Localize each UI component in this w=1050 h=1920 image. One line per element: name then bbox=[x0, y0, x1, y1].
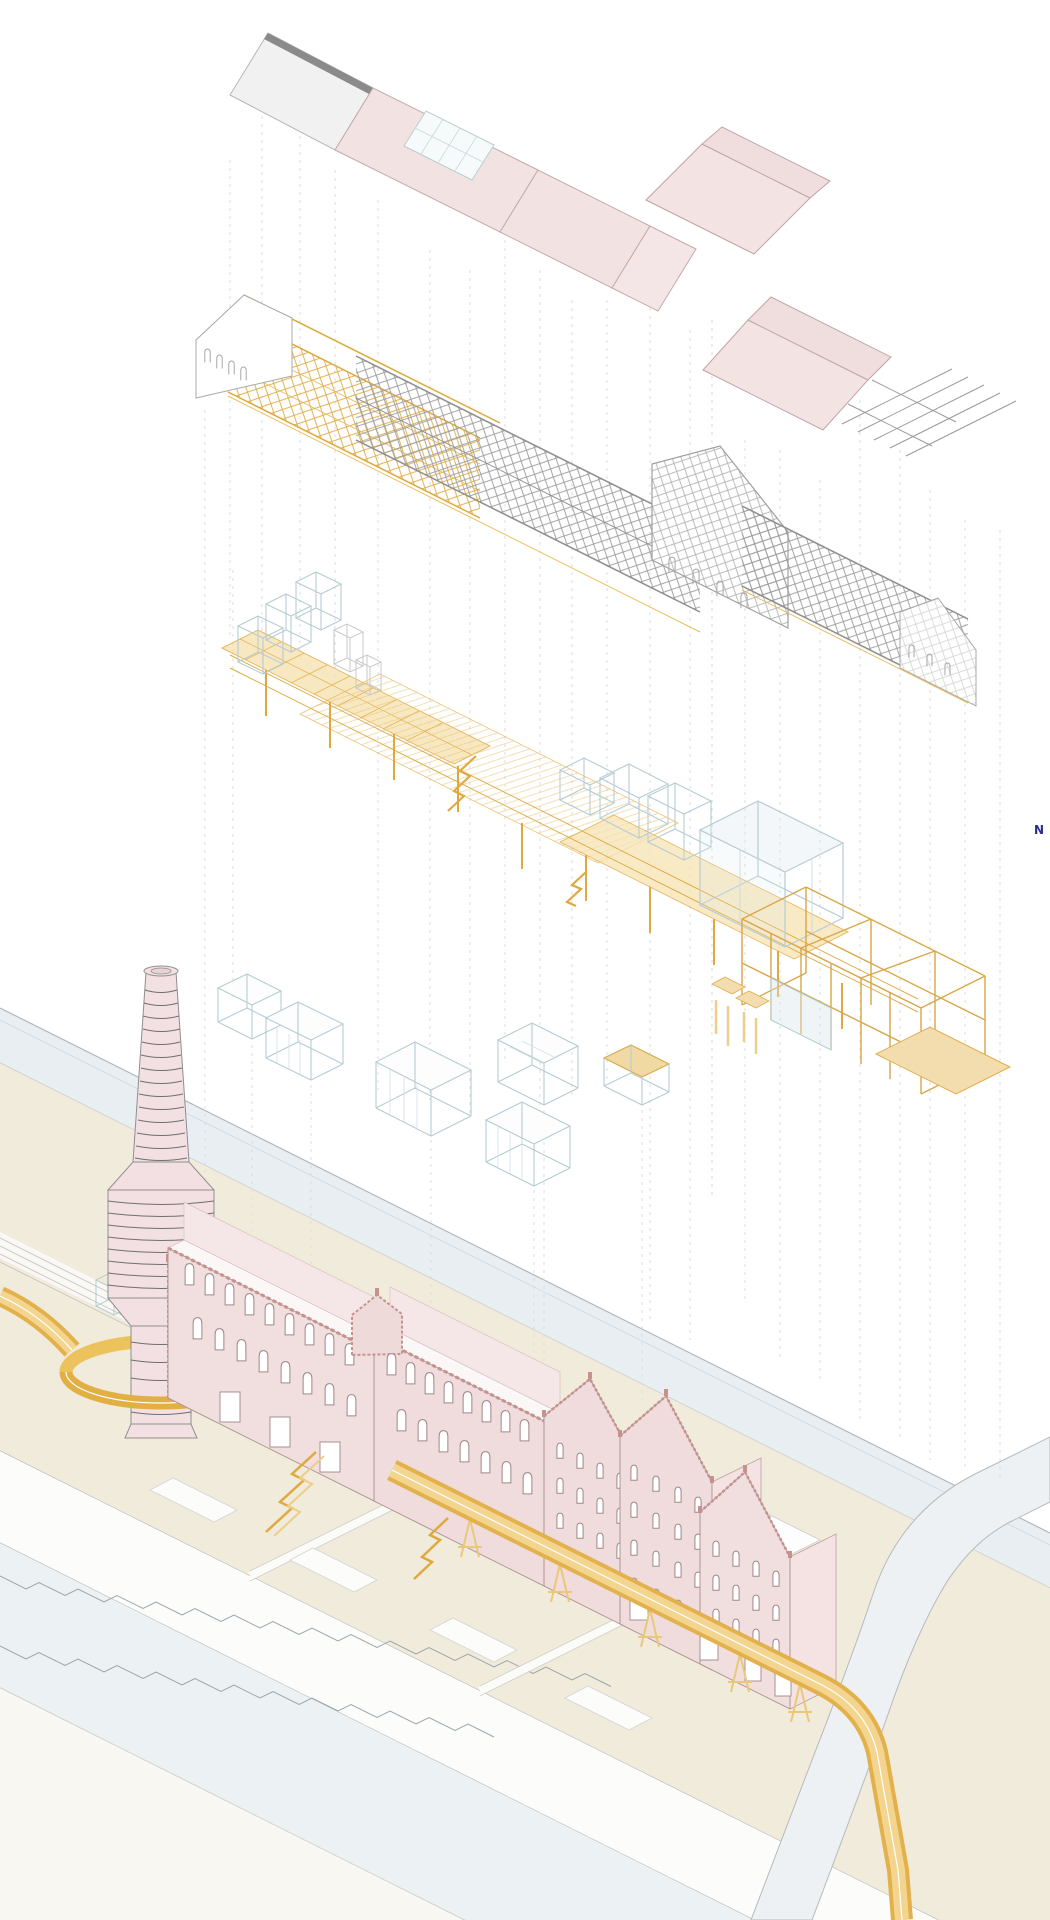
glass-pavilion-3 bbox=[376, 1042, 471, 1136]
floor-pads bbox=[712, 977, 769, 1008]
glass-pavilion-2 bbox=[266, 1002, 343, 1080]
solid-floor-plate bbox=[876, 1027, 1010, 1094]
detached-gable-roof-2 bbox=[703, 297, 891, 430]
glass-pavilion-5 bbox=[486, 1102, 570, 1186]
chimney-foot bbox=[125, 1424, 197, 1438]
north-label: N bbox=[1034, 823, 1044, 837]
rafter-frame bbox=[842, 369, 1016, 456]
mezzanine-stair-2 bbox=[567, 872, 586, 906]
mezzanine-rail-1 bbox=[230, 655, 918, 999]
exploded-axonometric-diagram: N bbox=[0, 0, 1050, 1920]
steel-truss-band-1 bbox=[356, 356, 700, 612]
yellow-top-pavilion bbox=[604, 1045, 669, 1105]
hanging-posts bbox=[716, 1000, 756, 1054]
end-gable-wall bbox=[898, 598, 978, 708]
detached-gable-roof-1 bbox=[646, 127, 830, 254]
glass-pavilion-1 bbox=[218, 974, 281, 1039]
glass-pavilion-4 bbox=[498, 1023, 578, 1105]
